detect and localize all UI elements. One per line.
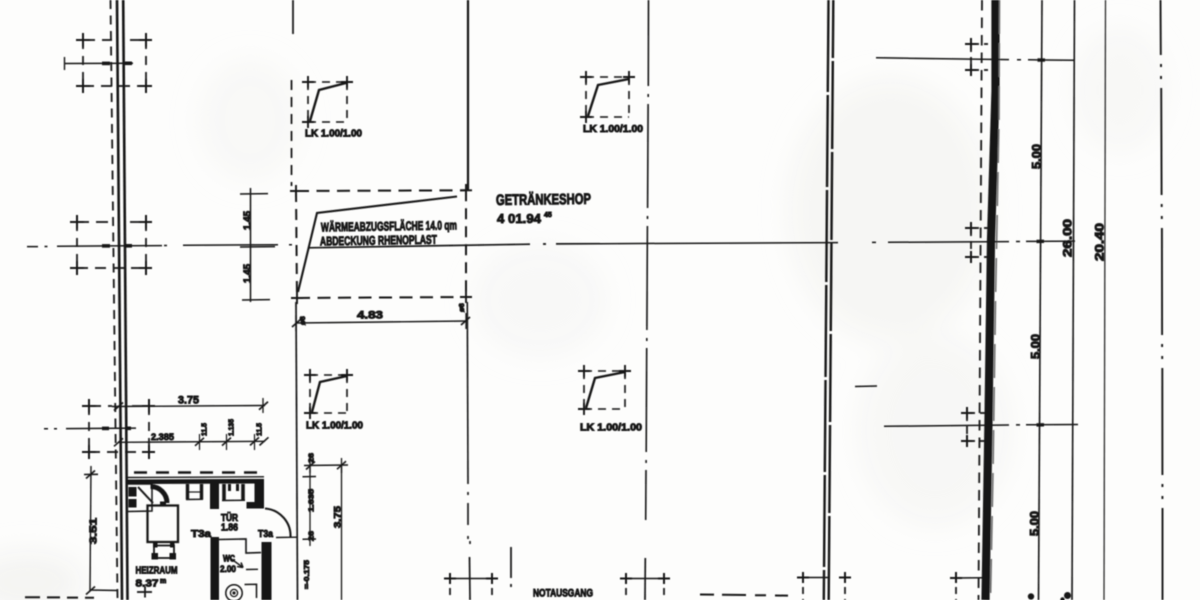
svg-text:3.75: 3.75	[178, 395, 199, 407]
svg-text:4.83: 4.83	[357, 310, 383, 322]
svg-text:m: m	[160, 578, 166, 585]
svg-text:5.00: 5.00	[1032, 144, 1044, 169]
svg-text:=-0.175: =-0.175	[302, 560, 311, 589]
svg-text:T3a: T3a	[258, 529, 273, 540]
svg-text:5.00: 5.00	[1030, 511, 1042, 536]
svg-text:20.40: 20.40	[1095, 223, 1107, 261]
svg-text:5.00: 5.00	[1031, 334, 1043, 359]
svg-text:26: 26	[309, 531, 316, 541]
svg-text:1.45: 1.45	[243, 211, 254, 230]
svg-text:GETRÄNKESHOP: GETRÄNKESHOP	[496, 191, 591, 209]
svg-text:T3a: T3a	[191, 529, 212, 540]
svg-text:4 01.94: 4 01.94	[497, 211, 542, 226]
svg-text:45: 45	[544, 212, 552, 219]
svg-text:ø6: ø6	[457, 303, 466, 312]
svg-text:LK 1.00/1.00: LK 1.00/1.00	[305, 128, 362, 140]
svg-text:WC: WC	[223, 554, 235, 565]
svg-text:11.5: 11.5	[255, 423, 264, 436]
svg-text:3.75: 3.75	[333, 505, 344, 528]
svg-text:26.00: 26.00	[1063, 219, 1075, 257]
svg-text:HEIZRAUM: HEIZRAUM	[136, 565, 178, 577]
svg-text:1.86: 1.86	[221, 523, 238, 534]
svg-text:1.45: 1.45	[243, 264, 254, 283]
svg-text:8.37: 8.37	[136, 578, 159, 590]
svg-text:ø6: ø6	[298, 316, 307, 325]
svg-text:NOTAUSGANG: NOTAUSGANG	[533, 588, 593, 600]
svg-text:2.385: 2.385	[151, 432, 175, 443]
svg-text:ABDECKUNG RHENOPLAST: ABDECKUNG RHENOPLAST	[320, 233, 437, 249]
svg-text:LK 1.00/1.00: LK 1.00/1.00	[580, 422, 642, 434]
svg-text:1.135: 1.135	[227, 419, 236, 436]
svg-text:1.635: 1.635	[307, 489, 316, 512]
svg-text:11.5: 11.5	[200, 423, 209, 436]
svg-text:LK 1.00/1.00: LK 1.00/1.00	[583, 123, 643, 135]
svg-text:2.00: 2.00	[220, 564, 236, 575]
svg-text:3.51: 3.51	[89, 517, 100, 544]
svg-text:LK 1.00/1.00: LK 1.00/1.00	[306, 420, 363, 432]
svg-text:26: 26	[309, 453, 316, 463]
